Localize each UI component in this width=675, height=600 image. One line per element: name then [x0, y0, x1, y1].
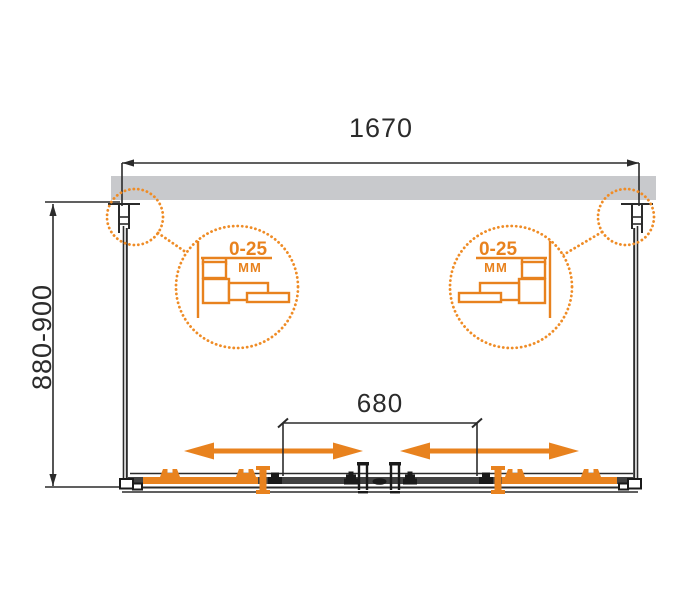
dim-arrow-left	[122, 159, 134, 166]
shower-enclosure-plan-svg: 1670 880-900	[0, 0, 675, 600]
detail-left-unit: MM	[238, 260, 262, 275]
back-wall-bar	[111, 176, 656, 200]
sliding-door-right	[491, 466, 617, 494]
detail-left-value: 0-25	[229, 239, 267, 260]
dimension-depth-label: 880-900	[27, 284, 57, 390]
door-stopper-left	[357, 462, 369, 466]
slide-direction-arrow-right	[400, 443, 579, 460]
dim-arrow-up	[49, 204, 56, 216]
callout-connector-right	[563, 232, 602, 255]
door-edge-profile-left	[256, 466, 270, 470]
dim-arrow-down	[49, 474, 56, 486]
callout-connector-left	[158, 233, 187, 253]
detail-right-unit: MM	[484, 260, 508, 275]
wall-profile-right	[621, 204, 653, 486]
dimension-opening-680: 680	[278, 388, 482, 476]
dim-arrow-right	[627, 159, 639, 166]
technical-drawing-canvas: 1670 880-900	[0, 0, 675, 600]
wall-profile-left	[108, 204, 140, 486]
center-knob	[373, 478, 387, 485]
sliding-door-left	[143, 466, 270, 494]
door-stopper-right	[389, 462, 401, 466]
detail-right-value: 0-25	[479, 239, 517, 260]
dimension-width-label: 1670	[349, 113, 413, 143]
door-guide-right	[479, 473, 493, 485]
door-edge-profile-right	[491, 466, 505, 470]
door-guide-left	[268, 473, 282, 485]
dimension-opening-label: 680	[357, 388, 403, 418]
dimension-side-880-900: 880-900	[27, 202, 122, 487]
slide-direction-arrow-left	[184, 443, 363, 460]
